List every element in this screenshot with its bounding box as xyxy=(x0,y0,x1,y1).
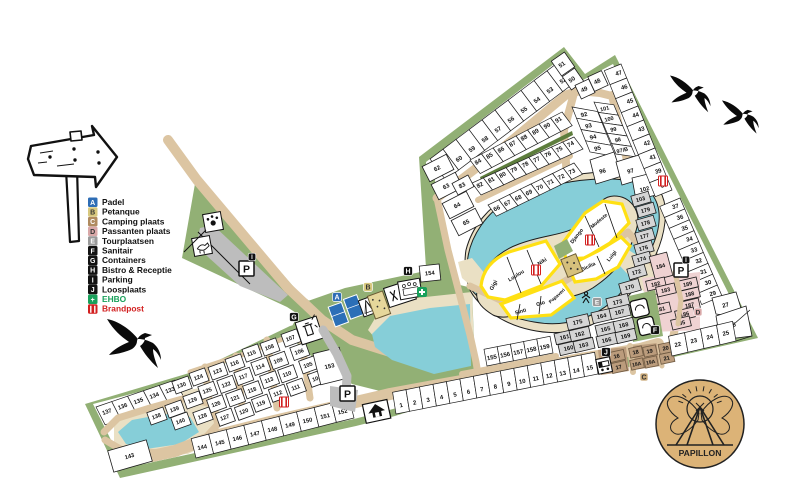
svg-text:E: E xyxy=(90,239,95,246)
svg-text:16: 16 xyxy=(613,353,620,360)
svg-text:Loosplaats: Loosplaats xyxy=(102,284,147,294)
svg-text:P: P xyxy=(344,389,351,401)
svg-text:+: + xyxy=(91,297,95,304)
svg-text:G: G xyxy=(291,315,297,322)
svg-text:E: E xyxy=(595,299,600,306)
svg-text:EHBO: EHBO xyxy=(102,294,127,304)
svg-text:F: F xyxy=(653,328,658,335)
svg-text:C: C xyxy=(641,375,646,382)
svg-text:19: 19 xyxy=(646,348,653,355)
svg-text:A: A xyxy=(90,200,95,207)
svg-text:17: 17 xyxy=(615,364,622,371)
svg-text:H: H xyxy=(90,268,95,275)
svg-text:B: B xyxy=(365,285,370,292)
svg-text:A: A xyxy=(334,295,339,302)
svg-text:21: 21 xyxy=(663,355,670,362)
svg-text:P: P xyxy=(678,266,685,277)
svg-text:H: H xyxy=(405,269,410,276)
svg-text:C: C xyxy=(90,219,95,226)
svg-text:Bistro & Receptie: Bistro & Receptie xyxy=(102,265,172,275)
svg-text:154: 154 xyxy=(425,270,436,277)
svg-text:Camping plaats: Camping plaats xyxy=(102,216,165,226)
svg-text:B: B xyxy=(90,210,95,217)
svg-text:Tourplaatsen: Tourplaatsen xyxy=(102,236,154,246)
svg-text:Brandpost: Brandpost xyxy=(102,304,144,314)
svg-text:J: J xyxy=(604,350,608,357)
svg-text:D: D xyxy=(696,309,701,316)
svg-text:Passanten plaats: Passanten plaats xyxy=(102,226,171,236)
svg-text:Padel: Padel xyxy=(102,197,124,207)
svg-text:I: I xyxy=(92,277,94,284)
svg-text:Petanque: Petanque xyxy=(102,207,140,217)
svg-text:18: 18 xyxy=(632,349,639,356)
svg-text:D: D xyxy=(90,229,95,236)
svg-text:Sanitair: Sanitair xyxy=(102,246,133,256)
svg-text:P: P xyxy=(243,264,250,276)
svg-text:Parking: Parking xyxy=(102,275,133,285)
svg-text:G: G xyxy=(90,258,96,265)
svg-text:PAPILLON: PAPILLON xyxy=(679,448,722,458)
svg-text:20: 20 xyxy=(662,345,669,352)
svg-text:Containers: Containers xyxy=(102,255,146,265)
svg-text:F: F xyxy=(91,248,96,255)
svg-text:J: J xyxy=(91,287,95,294)
